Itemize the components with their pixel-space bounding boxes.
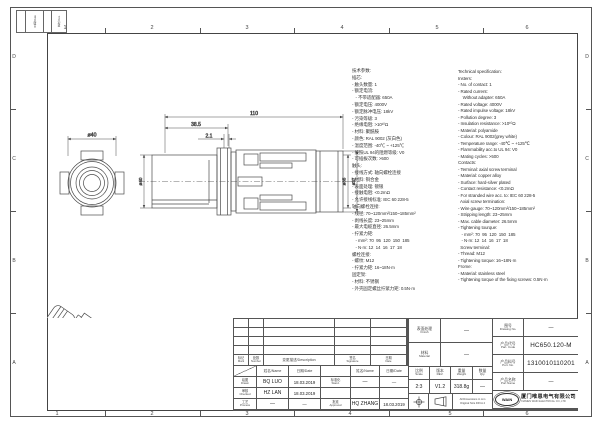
dia35-label: ø35 (342, 177, 347, 185)
fold-cell-date: 日期/Date (25, 10, 43, 33)
weight-label: 重量 Weight (451, 367, 472, 379)
side-dia-label: ø40 (138, 177, 143, 185)
rev-value: V1.2 (430, 380, 450, 393)
front-dia-dim: ø40 (68, 133, 116, 157)
name-header: 姓名/Name (257, 366, 288, 376)
zone-letter-right-b: B (584, 258, 590, 264)
front-dia-label: ø40 (88, 133, 97, 139)
zone-letter-right-c: C (584, 156, 590, 162)
zone-tick (105, 411, 106, 416)
drawing-no-label: 图号 Drawing No. (493, 319, 523, 336)
zone-tick (10, 109, 16, 110)
total-length-label: 110 (250, 111, 258, 117)
spec-english: Technical specification:Insters:- No. of… (458, 69, 576, 284)
titleblock-fields: 表面处理 Finish — 材料 Material — 比例 Scale 2:3… (408, 318, 492, 411)
process-name: — (257, 399, 288, 409)
zone-number-top-3: 3 (242, 25, 252, 31)
side-view: 110 38.5 2.1 ø40 ø35 (138, 111, 360, 215)
part-code-value: HC650.120-M (524, 337, 578, 354)
qty-label: 数量 Qty. (473, 367, 492, 379)
projection-target-icon (409, 394, 428, 409)
rev-label: 版本 REV. (430, 367, 450, 379)
process-date: — (289, 399, 320, 409)
drawn-date: 18.03.2019 (289, 377, 320, 387)
wain-logo: WAIN (495, 393, 519, 406)
dimension-note: All Dimensions in mm Original Size DIN A… (453, 394, 492, 409)
checked-date: 18.03.2019 (289, 388, 320, 398)
titleblock-part: 图号 Drawing No. — 产品代号 Part. Code HC650.1… (492, 318, 578, 411)
drawn-label: 绘图 Drawn (234, 377, 256, 387)
fold-cell-empty-1 (16, 10, 25, 33)
finish-label: 表面处理 Finish (409, 319, 440, 342)
zone-number-top-1: 1 (60, 25, 70, 31)
flange-pos-label: 38.5 (191, 122, 201, 128)
checked-name: HZ LAN (257, 388, 288, 398)
zone-number-bottom-5: 5 (445, 411, 455, 417)
zone-number-top-2: 2 (147, 25, 157, 31)
zone-letter-left-c: C (11, 156, 17, 162)
part-no-value: 1310010110201 (524, 355, 578, 372)
zone-letter-right-a: A (584, 360, 590, 366)
zone-tick (389, 411, 390, 416)
zone-letter-left-b: B (11, 258, 17, 264)
stand-name: — (351, 377, 379, 387)
drawing-no-value: — (524, 319, 578, 336)
zone-tick (10, 211, 16, 212)
rev-col-date: 日期 Date (371, 355, 406, 365)
approved-label: 批准 Approved (321, 399, 350, 409)
name-header-2: 姓名/Name (351, 366, 379, 376)
zone-tick (483, 411, 484, 416)
zone-tick (586, 109, 592, 110)
side-view-dims: 110 38.5 2.1 ø40 ø35 (138, 111, 360, 212)
approved-date: 18.03.2019 (380, 399, 408, 409)
spec-chinese: 技术参数:插芯:- 触头数量: 1- 额定电流: - 不带适配器: 650A- … (352, 68, 454, 292)
part-no-label: 产品料号 Port. No. (493, 355, 523, 372)
material-label: 材料 Material (409, 343, 440, 366)
titleblock-revision: 标记 Mark 处数 Number 变更描述/Description 签名 Si… (233, 318, 408, 411)
zone-number-bottom-6: 6 (522, 411, 532, 417)
fold-cell-empty-2 (43, 10, 51, 33)
zone-letter-left-a: A (11, 360, 17, 366)
scale-label: 比例 Scale (409, 367, 429, 379)
date-header: 日期/Date (289, 366, 320, 376)
date-header-2: 日期/Date (380, 366, 408, 376)
zone-tick (294, 411, 295, 416)
part-name-value: — (524, 373, 578, 390)
zone-letter-right-d: D (584, 54, 590, 60)
finish-value: — (441, 319, 492, 342)
zone-number-bottom-4: 4 (345, 411, 355, 417)
stand-date: — (380, 377, 408, 387)
zone-number-top-4: 4 (337, 25, 347, 31)
rev-empty (234, 319, 248, 327)
scale-value: 2:3 (409, 380, 429, 393)
fold-date-label: 日期/Date (33, 15, 37, 27)
zone-letter-left-d: D (11, 54, 17, 60)
zone-number-top-5: 5 (432, 25, 442, 31)
material-value: — (441, 343, 492, 366)
part-code-label: 产品代号 Part. Code (493, 337, 523, 354)
rev-col-number: 处数 Number (249, 355, 263, 365)
rev-col-mark: 标记 Mark (234, 355, 248, 365)
zone-number-bottom-2: 2 (147, 411, 157, 417)
zone-tick (200, 411, 201, 416)
drawing-sheet: 日期/Date 更改 Des. 1 2 3 4 5 6 1 2 3 4 5 6 … (0, 0, 600, 424)
approved-name: HQ ZHANG (351, 399, 379, 409)
process-label: 工艺 Process (234, 399, 256, 409)
isometric-view (47, 297, 138, 318)
zone-number-bottom-1: 1 (52, 411, 62, 417)
first-angle-projection-icon (429, 394, 452, 409)
qty-value: — (473, 380, 492, 393)
weight-value: 318.8g (451, 380, 472, 393)
front-view: ø40 (60, 133, 124, 216)
rev-col-description: 变更描述/Description (264, 355, 334, 365)
rev-col-signature: 签名 Signature (335, 355, 370, 365)
zone-tick (586, 313, 592, 314)
part-name-label: 产品名称 Port Name (493, 373, 523, 390)
company-name-en: XIAMEN WAIN ELECTRICAL CO.,LTD (521, 401, 566, 404)
checked-label: 审核 Checked (234, 388, 256, 398)
zone-tick (10, 313, 16, 314)
zone-number-top-6: 6 (522, 25, 532, 31)
rev-diagonal-cell (234, 366, 256, 376)
groove-label: 2.1 (206, 134, 213, 140)
company-block: WAIN 厦门唯恩电气有限公司 XIAMEN WAIN ELECTRICAL C… (493, 391, 578, 408)
stand-label: 标准化 Stand. (321, 377, 350, 387)
drawn-name: BQ LUO (257, 377, 288, 387)
zone-tick (586, 211, 592, 212)
zone-number-bottom-3: 3 (242, 411, 252, 417)
